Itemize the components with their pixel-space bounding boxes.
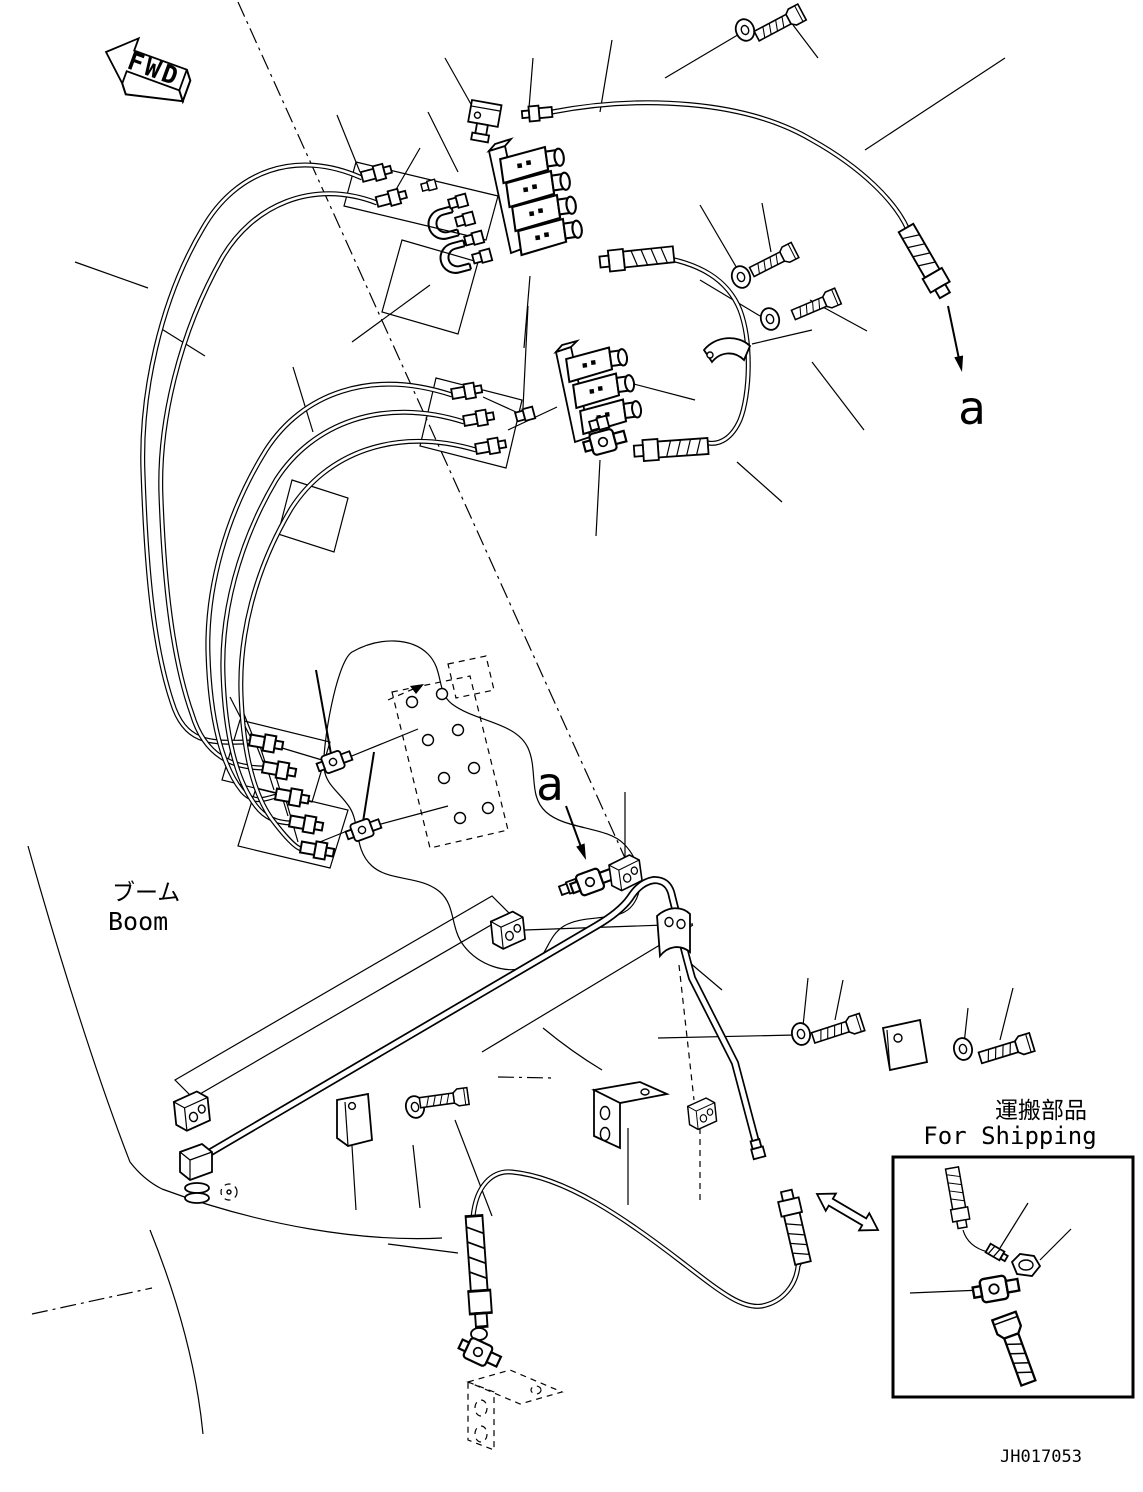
curved-bracket [657, 908, 690, 956]
drawing-number: JH017053 [1000, 1447, 1082, 1467]
washer [758, 306, 782, 332]
boom-tube-assembly [173, 854, 757, 1203]
fwd-label: FWD [124, 46, 185, 92]
tube-clamp [173, 1090, 211, 1131]
bolt [419, 1088, 469, 1112]
tube-clamp [490, 911, 526, 950]
top-hose-assembly [521, 4, 954, 301]
tube-clamp [687, 1097, 717, 1130]
hose-coupling [300, 839, 335, 861]
bolt [977, 1033, 1034, 1067]
section-arrow-a-top: a [948, 306, 986, 435]
u-bolt [425, 206, 459, 242]
swap-arrow [817, 1194, 878, 1231]
hose-coupling [375, 187, 408, 209]
threaded-hose-end [896, 222, 954, 300]
l-bracket [594, 1082, 667, 1148]
elbow-fitting [315, 747, 354, 776]
upper-manifold [421, 100, 585, 276]
hose-coupling [262, 759, 297, 781]
parts-diagram-page: FWD a a ブーム Boom 運搬部品 For Shipping JH017… [0, 0, 1143, 1492]
shipping-parts-inset [893, 1157, 1133, 1397]
banjo-fitting [465, 100, 501, 144]
washer [952, 1036, 974, 1061]
boom-label-jp: ブーム [112, 880, 180, 906]
bolt [752, 4, 806, 44]
shipping-label-en: For Shipping [923, 1122, 1096, 1150]
threaded-hose-end [776, 1189, 813, 1266]
bracket-plate [337, 1094, 372, 1146]
hose-coupling [289, 813, 324, 835]
mounting-face-outline [324, 641, 640, 970]
section-marker-a-top: a [958, 381, 986, 435]
bottom-s-hose [456, 1139, 878, 1450]
hose-coupling [275, 786, 310, 808]
hidden-bracket [468, 1370, 562, 1450]
threaded-hose-end [463, 1215, 493, 1327]
hose-coupling [463, 408, 495, 428]
boom-label-en: Boom [108, 907, 168, 936]
hose-coupling [451, 381, 483, 401]
elbow-fitting [344, 815, 383, 844]
second-hose-assembly [599, 242, 841, 461]
washer [733, 17, 757, 44]
elbow-fitting [456, 1334, 503, 1371]
boom-piping-diagram: FWD a a ブーム Boom 運搬部品 For Shipping JH017… [0, 0, 1143, 1492]
center-axis-line [238, 2, 625, 858]
bolt [790, 288, 841, 323]
boom-hose-bundle [143, 162, 507, 861]
hose-coupling [360, 162, 393, 184]
tube-end-elbow [180, 1144, 237, 1203]
section-marker-a-mid: a [536, 757, 564, 811]
fwd-direction-arrow: FWD [95, 29, 198, 113]
bolt [748, 242, 799, 279]
shipping-label-jp: 運搬部品 [995, 1098, 1087, 1124]
lower-manifold [515, 341, 644, 457]
hose-coupling [249, 732, 284, 754]
bolt [810, 1013, 864, 1046]
section-arrow-a-mid: a [536, 757, 586, 860]
hose-coupling [475, 436, 507, 456]
washer [790, 1021, 812, 1046]
